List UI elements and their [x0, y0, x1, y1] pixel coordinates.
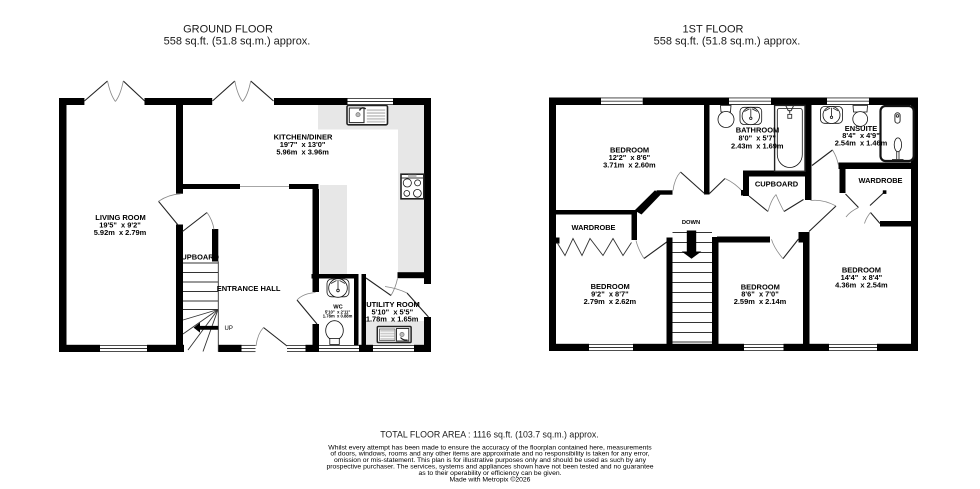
svg-text:ENTRANCE HALL: ENTRANCE HALL — [217, 284, 281, 293]
svg-text:3.71m x 2.60m: 3.71m x 2.60m — [603, 161, 656, 170]
svg-text:5.96m x 3.96m: 5.96m x 3.96m — [276, 148, 329, 157]
svg-text:558 sq.ft. (51.8 sq.m.) approx: 558 sq.ft. (51.8 sq.m.) approx. — [164, 36, 311, 48]
svg-text:2.59m x 2.14m: 2.59m x 2.14m — [734, 297, 787, 306]
svg-text:DOWN: DOWN — [682, 220, 700, 226]
svg-text:2.43m x 1.69m: 2.43m x 1.69m — [731, 141, 784, 150]
svg-text:CUPBOARD: CUPBOARD — [755, 180, 799, 189]
svg-text:WARDROBE: WARDROBE — [572, 223, 616, 232]
svg-text:1ST FLOOR: 1ST FLOOR — [683, 24, 744, 36]
svg-text:558 sq.ft. (51.8 sq.m.) approx: 558 sq.ft. (51.8 sq.m.) approx. — [654, 36, 801, 48]
svg-text:2.79m x 2.62m: 2.79m x 2.62m — [584, 297, 637, 306]
svg-text:UP: UP — [225, 326, 233, 332]
svg-text:GROUND FLOOR: GROUND FLOOR — [183, 24, 273, 36]
svg-text:2.54m x 1.46m: 2.54m x 1.46m — [835, 139, 888, 148]
svg-text:CUPBOARD: CUPBOARD — [176, 253, 220, 262]
svg-text:1.78m x 0.88m: 1.78m x 0.88m — [323, 314, 353, 319]
svg-text:5.92m x 2.79m: 5.92m x 2.79m — [94, 228, 147, 237]
svg-text:WARDROBE: WARDROBE — [859, 176, 903, 185]
svg-text:TOTAL FLOOR AREA : 1116 sq.ft.: TOTAL FLOOR AREA : 1116 sq.ft. (103.7 sq… — [380, 430, 599, 440]
svg-text:4.36m x 2.54m: 4.36m x 2.54m — [835, 281, 888, 290]
svg-text:1.78m x 1.65m: 1.78m x 1.65m — [366, 315, 419, 324]
svg-text:Made with Metropix ©2026: Made with Metropix ©2026 — [450, 475, 531, 483]
